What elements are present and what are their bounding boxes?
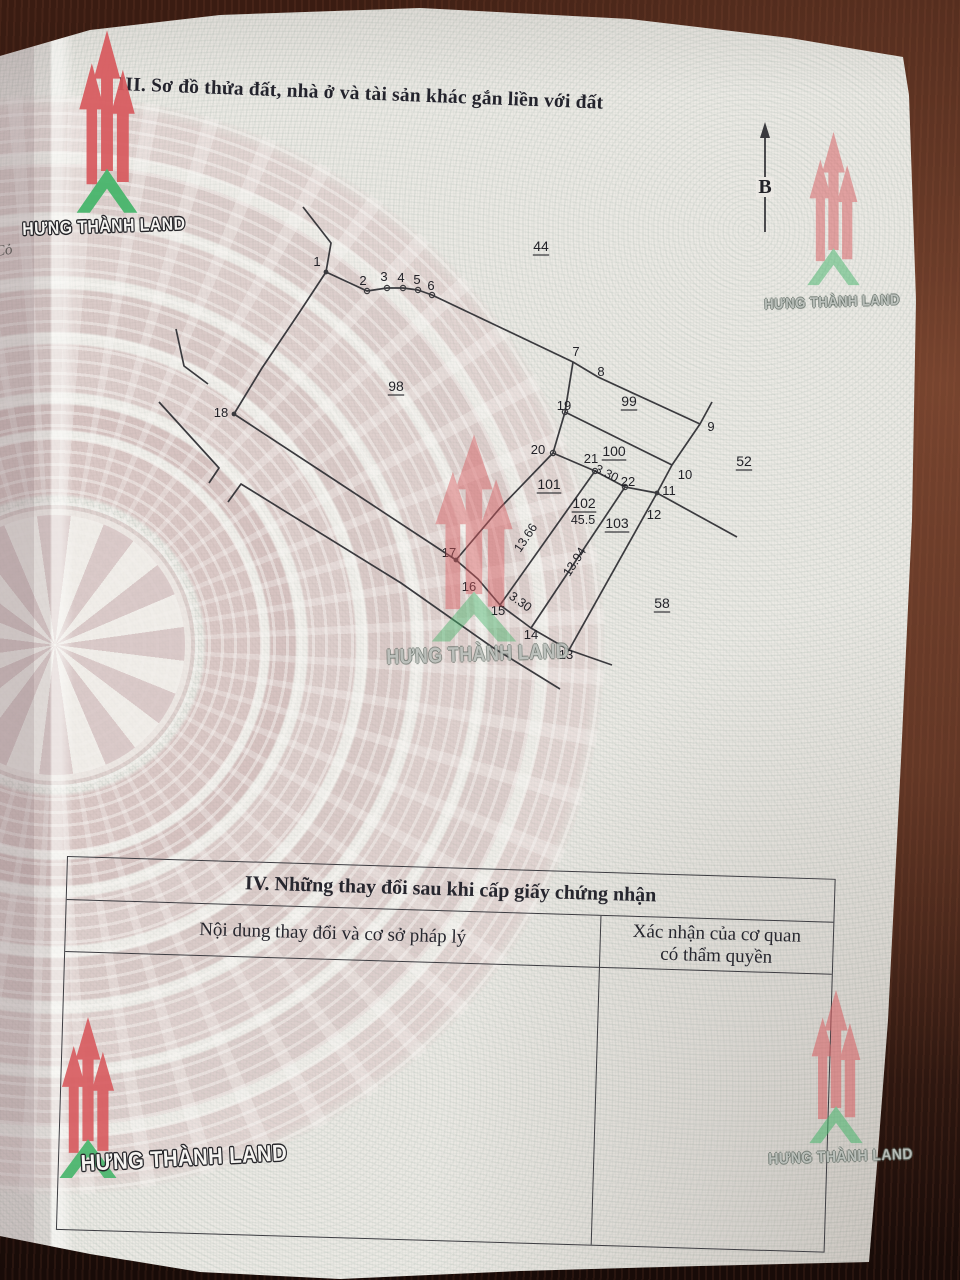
hung-thanh-land-logo (428, 432, 520, 644)
point-label: 10 (678, 467, 692, 482)
point-label: 1 (313, 254, 320, 269)
parcel-number-label: 102 (572, 495, 596, 511)
point-label: 11 (662, 483, 676, 498)
point-label: 19 (557, 398, 571, 413)
point-label: 7 (572, 344, 579, 359)
north-label: B (758, 176, 771, 198)
changes-table: IV. Những thay đổi sau khi cấp giấy chứn… (56, 856, 836, 1253)
survey-point-dot (324, 270, 329, 275)
changes-table-body-right (591, 968, 832, 1252)
point-label: 9 (707, 419, 714, 434)
survey-point-dot (232, 412, 237, 417)
parcel-number-label: 99 (621, 393, 637, 409)
point-label: 5 (413, 272, 420, 287)
changes-table-body-left (57, 952, 599, 1245)
col2-header-line1: Xác nhận của cơ quan (632, 920, 801, 947)
boundary-line (159, 402, 219, 483)
changes-table-col2-header: Xác nhận của cơ quan có thẩm quyền (599, 916, 834, 975)
north-arrow-head (760, 122, 770, 138)
boundary-line (176, 329, 208, 384)
point-label: 3 (380, 269, 387, 284)
point-label: 8 (597, 364, 604, 379)
point-label: 2 (359, 273, 366, 288)
col2-header-line2: có thẩm quyền (660, 943, 772, 968)
parcel-number-label: 103 (605, 515, 629, 531)
point-label: 12 (647, 507, 661, 522)
hung-thanh-land-logo (807, 988, 865, 1145)
point-label: 6 (427, 278, 434, 293)
boundary-line (657, 493, 737, 537)
survey-point-dot (655, 491, 660, 496)
parcel-number-label: 44 (533, 238, 549, 254)
point-label: 20 (531, 442, 545, 457)
parcel-number-label: 101 (537, 476, 561, 492)
measurement-label: 45.5 (571, 513, 595, 527)
measurement-label: 13.94 (560, 545, 589, 579)
parcel-number-label: 100 (602, 443, 626, 459)
parcel-number-label: 52 (736, 453, 752, 469)
hung-thanh-land-logo (805, 130, 862, 287)
hung-thanh-land-watermark: HƯNG THÀNH LAND (768, 1146, 913, 1169)
point-label: 18 (214, 405, 228, 420)
hung-thanh-land-logo (74, 28, 140, 215)
point-label: 22 (621, 474, 635, 489)
point-label: 21 (584, 451, 598, 466)
parcel-number-label: 58 (654, 595, 670, 611)
point-label: 4 (397, 270, 404, 285)
boundary-line (234, 414, 456, 560)
boundary-line (234, 272, 326, 414)
parcel-number-label: 98 (388, 378, 404, 394)
boundary-line (326, 272, 700, 424)
